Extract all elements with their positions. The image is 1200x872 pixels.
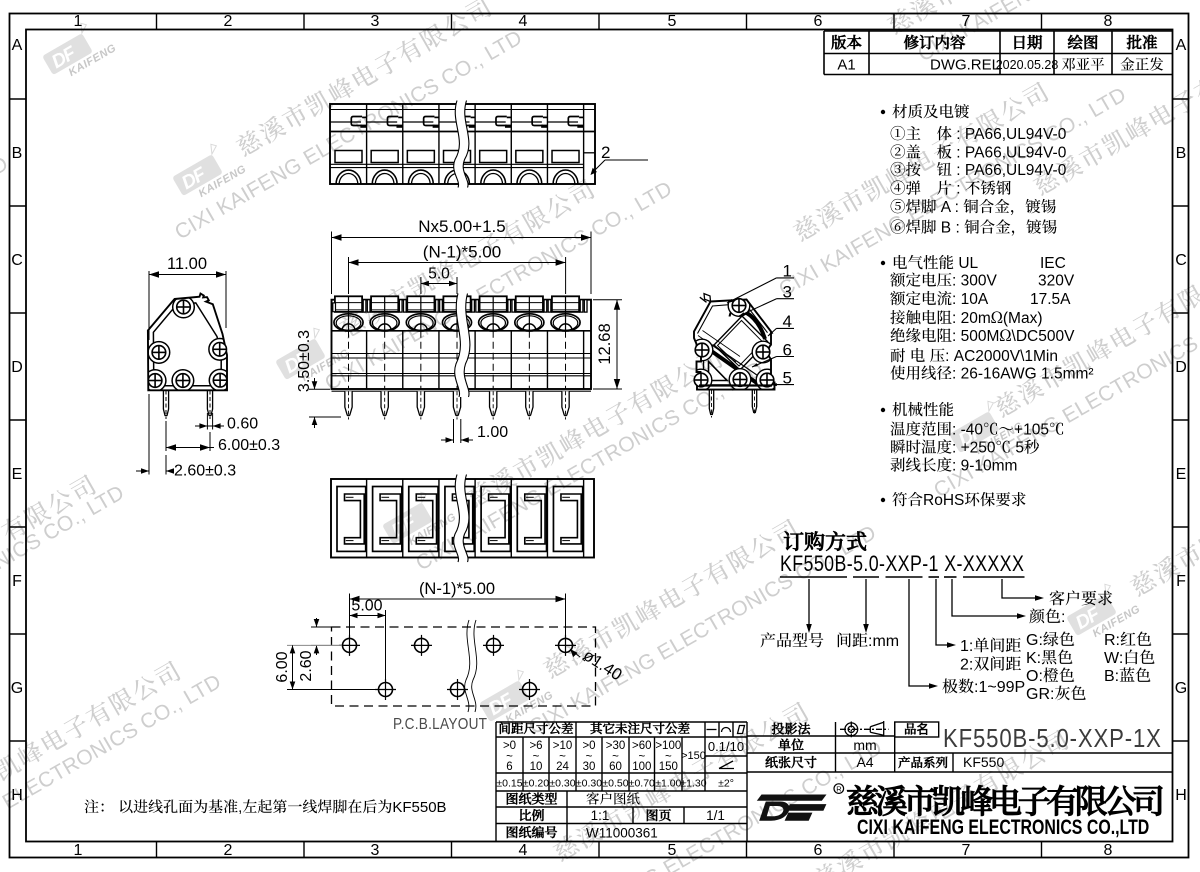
svg-text:mm: mm bbox=[853, 737, 876, 753]
svg-text:±1.00: ±1.00 bbox=[655, 778, 681, 790]
svg-text:4: 4 bbox=[519, 13, 528, 30]
svg-text:C: C bbox=[1175, 252, 1187, 269]
svg-text:2.60: 2.60 bbox=[298, 650, 315, 681]
svg-text:1/1: 1/1 bbox=[706, 808, 725, 823]
svg-text:G: G bbox=[1175, 680, 1187, 697]
svg-text:(N-1)*5.00: (N-1)*5.00 bbox=[419, 580, 495, 598]
svg-text:H: H bbox=[11, 787, 23, 804]
svg-text:A: A bbox=[12, 37, 23, 54]
svg-text:2:双间距: 2:双间距 bbox=[960, 652, 1021, 675]
svg-text:KF550B-5.0-XXP-1X: KF550B-5.0-XXP-1X bbox=[943, 724, 1162, 753]
svg-text:100: 100 bbox=[632, 761, 651, 773]
svg-text:材质及电镀: 材质及电镀 bbox=[892, 100, 970, 122]
svg-text:G: G bbox=[11, 680, 23, 697]
svg-text:间距尺寸公差: 间距尺寸公差 bbox=[498, 719, 574, 737]
svg-text:A: A bbox=[1176, 37, 1187, 54]
svg-text:Nx5.00+1.5: Nx5.00+1.5 bbox=[418, 217, 505, 236]
svg-text:注： 以进线孔面为基准,左起第一线焊脚在后为KF550B: 注： 以进线孔面为基准,左起第一线焊脚在后为KF550B bbox=[84, 796, 447, 817]
svg-text:R: R bbox=[836, 784, 842, 793]
svg-text:图页: 图页 bbox=[645, 805, 671, 824]
svg-text:使用线径: 26-16AWG 1.5mm²: 使用线径: 26-16AWG 1.5mm² bbox=[890, 362, 1094, 384]
svg-text:客户图纸: 客户图纸 bbox=[586, 788, 640, 808]
svg-text:2020.05.28: 2020.05.28 bbox=[996, 58, 1059, 72]
svg-text:5: 5 bbox=[668, 842, 677, 859]
svg-text:DWG.REL: DWG.REL bbox=[930, 57, 1000, 74]
svg-text:5.00: 5.00 bbox=[351, 598, 382, 615]
svg-text:150: 150 bbox=[659, 761, 678, 773]
svg-text:产品型号: 产品型号 bbox=[760, 628, 824, 651]
svg-text:W11000361: W11000361 bbox=[586, 826, 658, 841]
svg-text:符合RoHS环保要求: 符合RoHS环保要求 bbox=[892, 488, 1026, 510]
svg-text:纸张尺寸: 纸张尺寸 bbox=[765, 752, 817, 771]
svg-text:6: 6 bbox=[506, 761, 512, 773]
svg-text:CIXI KAIFENG ELECTRONICS CO.,L: CIXI KAIFENG ELECTRONICS CO.,LTD bbox=[857, 815, 1149, 839]
svg-text:IEC: IEC bbox=[1040, 255, 1066, 272]
svg-text:±1.30: ±1.30 bbox=[680, 778, 706, 790]
svg-text:12.68: 12.68 bbox=[596, 323, 614, 364]
svg-text:版本: 版本 bbox=[831, 31, 863, 53]
svg-text:±2°: ±2° bbox=[718, 778, 734, 790]
svg-text:2: 2 bbox=[224, 13, 233, 30]
svg-text:GR:灰色: GR:灰色 bbox=[1026, 681, 1086, 704]
svg-text:3: 3 bbox=[371, 13, 380, 30]
svg-text:批准: 批准 bbox=[1126, 31, 1158, 53]
svg-text:1.00: 1.00 bbox=[477, 424, 508, 441]
svg-text:1: 1 bbox=[74, 13, 83, 30]
svg-text:3.50±0.3: 3.50±0.3 bbox=[296, 330, 313, 392]
svg-text:绘图: 绘图 bbox=[1067, 31, 1098, 53]
svg-text:6.00±0.3: 6.00±0.3 bbox=[218, 437, 280, 454]
svg-text:剥线长度: 9-10mm: 剥线长度: 9-10mm bbox=[890, 454, 1017, 476]
svg-text:8: 8 bbox=[1104, 842, 1113, 859]
svg-text:17.5A: 17.5A bbox=[1030, 291, 1071, 308]
svg-text:0.1/10: 0.1/10 bbox=[708, 739, 744, 754]
svg-text:>150: >150 bbox=[681, 750, 706, 762]
svg-text:8: 8 bbox=[1104, 13, 1113, 30]
svg-text:F: F bbox=[1176, 573, 1186, 590]
svg-text:1:1: 1:1 bbox=[591, 808, 610, 823]
svg-text:320V: 320V bbox=[1038, 273, 1075, 290]
svg-text:其它未注尺寸公差: 其它未注尺寸公差 bbox=[590, 719, 691, 737]
svg-text:24: 24 bbox=[556, 761, 569, 773]
svg-text:D: D bbox=[1175, 359, 1187, 376]
svg-text:B:蓝色: B:蓝色 bbox=[1104, 663, 1151, 686]
svg-text:30: 30 bbox=[583, 761, 596, 773]
svg-text:H: H bbox=[1175, 787, 1187, 804]
svg-text:5.0: 5.0 bbox=[428, 266, 450, 283]
svg-text:6: 6 bbox=[814, 13, 823, 30]
svg-text:2.60±0.3: 2.60±0.3 bbox=[174, 463, 236, 480]
svg-text:邓亚平: 邓亚平 bbox=[1061, 54, 1105, 75]
svg-text:11.00: 11.00 bbox=[167, 255, 207, 273]
svg-text:4: 4 bbox=[519, 842, 528, 859]
svg-text:金正发: 金正发 bbox=[1120, 54, 1164, 75]
svg-text:⑤焊脚 A : 铜合金，镀锡: ⑤焊脚 A : 铜合金，镀锡 bbox=[890, 195, 1057, 217]
svg-text:D: D bbox=[11, 359, 23, 376]
svg-text:图纸编号: 图纸编号 bbox=[505, 822, 557, 841]
svg-text:60: 60 bbox=[609, 761, 622, 773]
svg-text:B: B bbox=[1176, 145, 1187, 162]
svg-text:A4: A4 bbox=[856, 754, 873, 770]
svg-text:修订内容: 修订内容 bbox=[903, 31, 966, 53]
svg-text:10: 10 bbox=[530, 761, 543, 773]
svg-text:2: 2 bbox=[601, 143, 610, 162]
svg-text:B: B bbox=[12, 145, 23, 162]
svg-text:⑥焊脚 B : 铜合金，镀锡: ⑥焊脚 B : 铜合金，镀锡 bbox=[890, 216, 1058, 238]
svg-text:P.C.B.LAYOUT: P.C.B.LAYOUT bbox=[393, 716, 487, 733]
svg-text:6: 6 bbox=[814, 842, 823, 859]
svg-text:0.60: 0.60 bbox=[227, 416, 258, 433]
svg-text:2: 2 bbox=[224, 842, 233, 859]
svg-text:KF550B-5.0-XXP-1 X-XXXXX: KF550B-5.0-XXP-1 X-XXXXX bbox=[780, 552, 1024, 576]
svg-text:3: 3 bbox=[371, 842, 380, 859]
svg-text:日期: 日期 bbox=[1011, 31, 1043, 53]
svg-text:5: 5 bbox=[668, 13, 677, 30]
svg-text:单位: 单位 bbox=[778, 735, 804, 754]
svg-text:7: 7 bbox=[962, 842, 971, 859]
svg-text:(N-1)*5.00: (N-1)*5.00 bbox=[423, 243, 501, 262]
svg-text:7: 7 bbox=[962, 13, 971, 30]
svg-text:E: E bbox=[1176, 466, 1187, 483]
svg-text:1: 1 bbox=[74, 842, 83, 859]
svg-text:6.00: 6.00 bbox=[274, 651, 291, 682]
svg-text:A1: A1 bbox=[837, 57, 855, 74]
svg-text:颜色:: 颜色: bbox=[1029, 604, 1065, 627]
svg-text:绝缘电阻: 500MΩ\DC500V: 绝缘电阻: 500MΩ\DC500V bbox=[890, 324, 1075, 346]
svg-text:E: E bbox=[12, 466, 23, 483]
svg-text:F: F bbox=[12, 573, 22, 590]
svg-text:产品系列: 产品系列 bbox=[898, 753, 949, 771]
svg-text:品名: 品名 bbox=[904, 720, 929, 738]
svg-text:KF550: KF550 bbox=[963, 754, 1004, 770]
svg-text:C: C bbox=[11, 252, 23, 269]
